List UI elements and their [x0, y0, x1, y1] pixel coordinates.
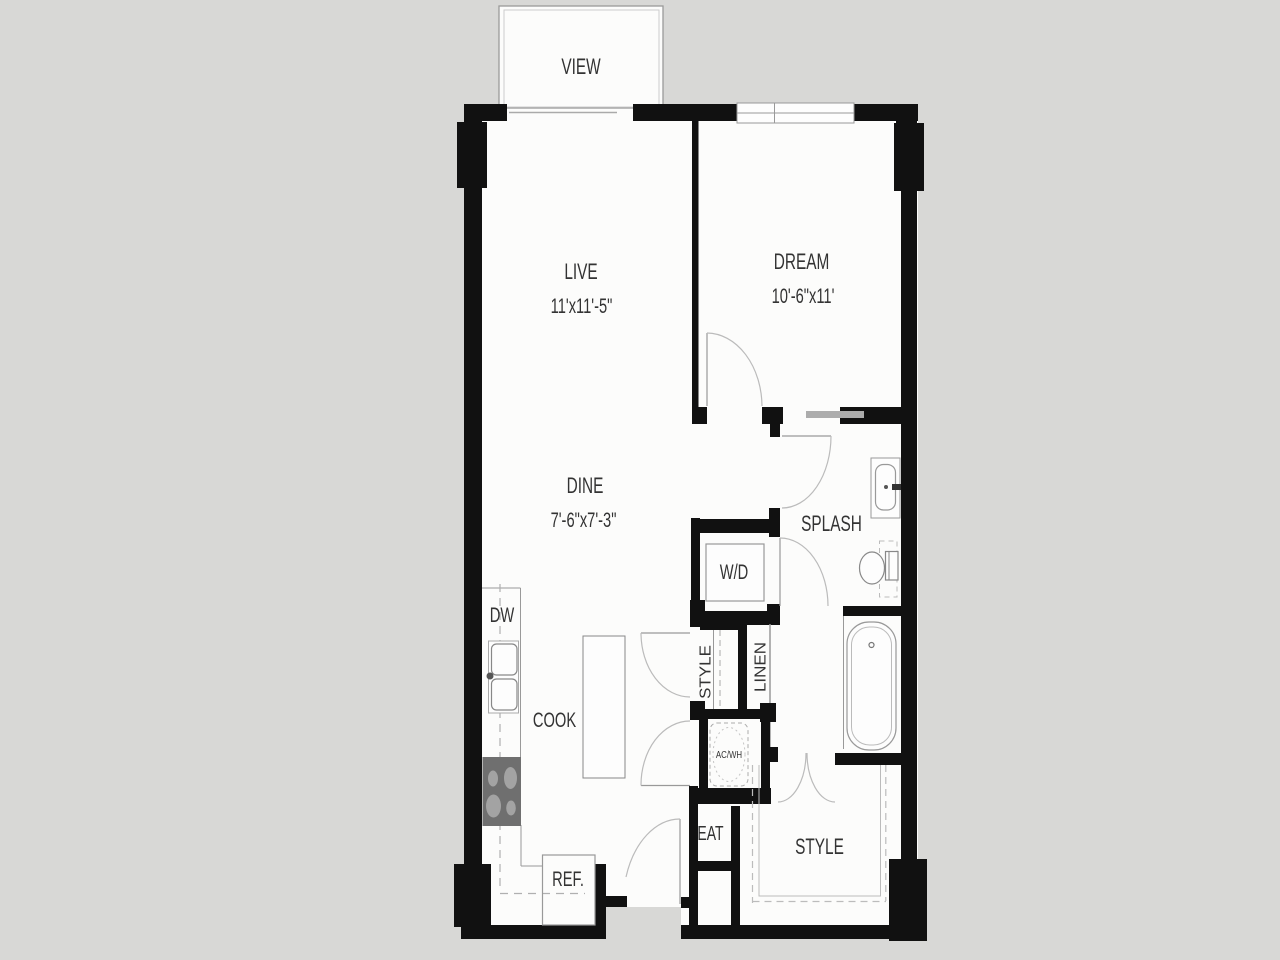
- svg-text:W/D: W/D: [720, 560, 749, 583]
- svg-text:EAT: EAT: [697, 821, 724, 844]
- svg-text:LIVE: LIVE: [564, 260, 597, 284]
- svg-text:COOK: COOK: [533, 708, 576, 731]
- svg-text:AC/WH: AC/WH: [716, 749, 742, 760]
- svg-text:DW: DW: [490, 603, 515, 626]
- svg-text:DREAM: DREAM: [774, 250, 830, 274]
- svg-text:VIEW: VIEW: [561, 55, 600, 79]
- svg-text:DINE: DINE: [567, 474, 604, 498]
- svg-text:STYLE: STYLE: [795, 835, 844, 859]
- svg-text:REF.: REF.: [552, 867, 584, 890]
- svg-text:SPLASH: SPLASH: [801, 512, 862, 536]
- svg-text:STYLE: STYLE: [697, 645, 714, 699]
- svg-text:10'-6"x11': 10'-6"x11': [772, 284, 835, 307]
- svg-text:LINEN: LINEN: [752, 642, 769, 692]
- svg-text:7'-6"x7'-3": 7'-6"x7'-3": [551, 508, 617, 531]
- svg-text:11'x11'-5": 11'x11'-5": [551, 294, 613, 317]
